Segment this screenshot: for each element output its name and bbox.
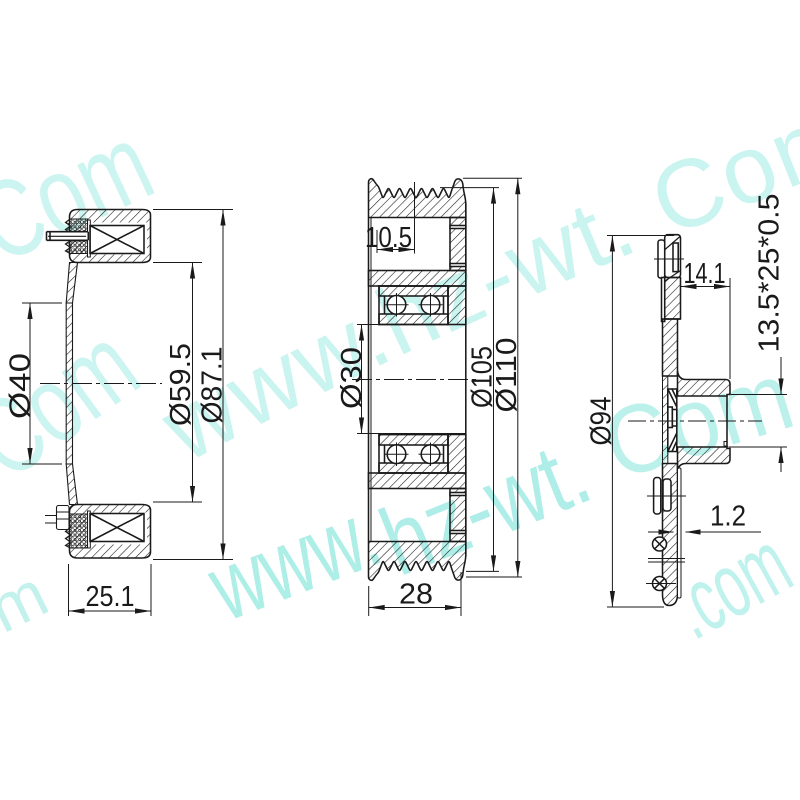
svg-text:1.2: 1.2 (710, 501, 746, 533)
svg-text:25.1: 25.1 (86, 581, 135, 613)
svg-text:28: 28 (399, 579, 433, 611)
svg-text:Ø59.5: Ø59.5 (165, 343, 197, 426)
svg-text:14.1: 14.1 (684, 258, 726, 290)
svg-text:Ø110: Ø110 (491, 338, 523, 413)
svg-text:10.5: 10.5 (365, 222, 412, 254)
svg-text:13.5*25*0.5: 13.5*25*0.5 (754, 194, 786, 353)
svg-text:Ø94: Ø94 (586, 397, 618, 446)
svg-text:Ø87.1: Ø87.1 (197, 347, 229, 424)
svg-text:Ø40: Ø40 (5, 353, 37, 419)
svg-text:Ø30: Ø30 (336, 347, 368, 409)
